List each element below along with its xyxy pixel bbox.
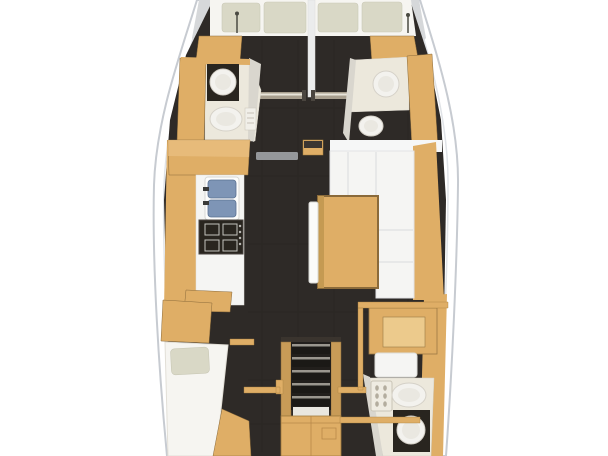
toilet-seat <box>216 112 236 126</box>
saloon-table <box>318 196 378 288</box>
floor-plan <box>0 0 608 456</box>
tread-edge <box>292 396 330 399</box>
seat <box>375 353 417 377</box>
pillow <box>222 3 260 32</box>
desk-top-panel <box>383 317 425 347</box>
cabinet-block-top <box>304 141 322 148</box>
pillow <box>362 2 402 32</box>
pillow <box>318 3 358 32</box>
stair-post <box>281 342 291 416</box>
hull-cabinet <box>177 58 206 144</box>
cabinet <box>161 300 212 343</box>
washbasin-bowl <box>378 76 394 92</box>
pillow <box>170 347 209 375</box>
tread-edge <box>292 383 330 386</box>
toilet-seat <box>364 120 378 132</box>
washbasin-bowl <box>215 74 231 90</box>
aft-head-port <box>177 57 261 144</box>
entry-step <box>256 152 298 160</box>
companionway <box>281 337 341 456</box>
landing <box>293 407 329 417</box>
table-edge <box>318 196 324 288</box>
sink-basin <box>208 180 236 198</box>
tread-edge <box>292 370 330 373</box>
stair-treads <box>292 344 330 406</box>
grab-pole-top <box>406 13 410 17</box>
shelf-unit <box>371 381 392 411</box>
galley <box>164 140 250 310</box>
wall-panel <box>245 108 256 130</box>
pillow <box>264 2 306 33</box>
yacht-floor-plan-page <box>0 0 608 456</box>
tread-edge <box>292 357 330 360</box>
stove <box>199 220 243 254</box>
top-cabinet-face <box>168 140 250 157</box>
toilet-seat <box>398 388 420 402</box>
stair-post <box>331 342 341 416</box>
sink-basin <box>208 200 236 217</box>
washbasin-bowl <box>402 421 420 439</box>
side-bench <box>309 202 318 283</box>
cabin-divider-wall <box>308 0 315 97</box>
grab-pole-top <box>235 12 239 16</box>
tread-edge <box>292 344 330 347</box>
